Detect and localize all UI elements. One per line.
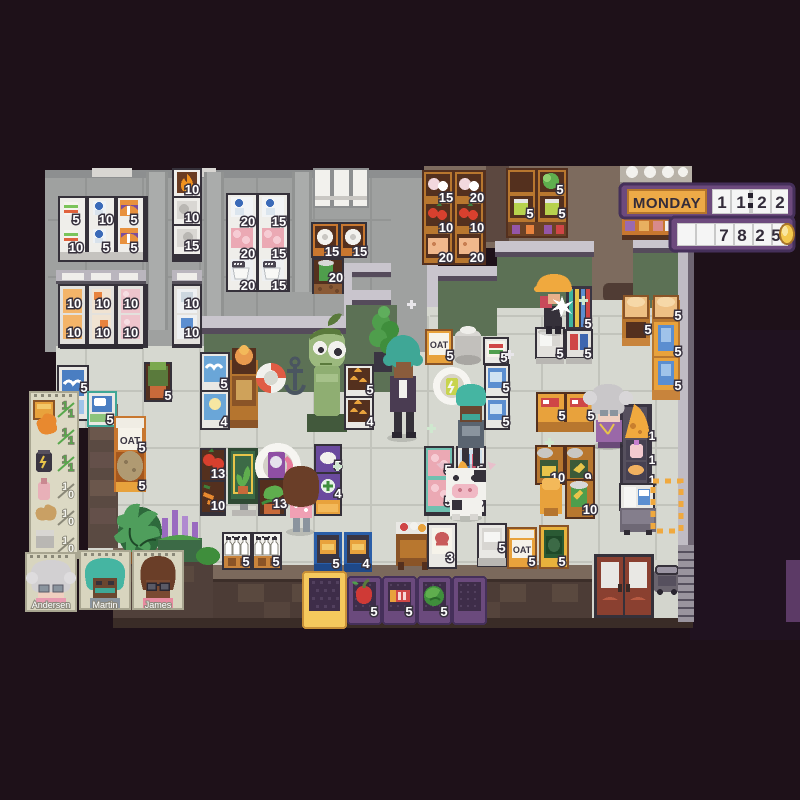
svg-text:13: 13 — [211, 466, 225, 481]
svg-text:20: 20 — [439, 250, 453, 265]
svg-text:15: 15 — [185, 238, 199, 253]
svg-text:5: 5 — [558, 408, 565, 423]
svg-text:1: 1 — [736, 193, 745, 212]
svg-text:20: 20 — [470, 250, 484, 265]
svg-text:James: James — [145, 600, 172, 610]
svg-text:5: 5 — [446, 348, 453, 363]
svg-text:1: 1 — [68, 435, 74, 447]
svg-text:15: 15 — [272, 278, 286, 293]
svg-text:5: 5 — [584, 316, 591, 331]
svg-text:10: 10 — [67, 325, 81, 340]
svg-text:5: 5 — [674, 344, 681, 359]
svg-text:5: 5 — [106, 412, 113, 427]
svg-text:3: 3 — [446, 550, 453, 565]
svg-text:5: 5 — [502, 414, 509, 429]
svg-text:10: 10 — [96, 325, 110, 340]
svg-text:5: 5 — [528, 554, 535, 569]
svg-text:5: 5 — [584, 346, 591, 361]
svg-text:5: 5 — [500, 350, 507, 365]
svg-text:0: 0 — [68, 489, 74, 501]
svg-text:10: 10 — [185, 182, 199, 197]
svg-text:10: 10 — [185, 210, 199, 225]
svg-text:20: 20 — [241, 214, 255, 229]
svg-text:4: 4 — [362, 556, 370, 571]
svg-text:1: 1 — [717, 193, 726, 212]
svg-text:5: 5 — [72, 212, 79, 227]
svg-text:5: 5 — [558, 206, 565, 221]
svg-text:1: 1 — [68, 462, 74, 474]
svg-text:10: 10 — [470, 220, 484, 235]
svg-text:5: 5 — [498, 540, 505, 555]
svg-text:5: 5 — [130, 212, 137, 227]
svg-text:10: 10 — [96, 296, 110, 311]
svg-text:5: 5 — [558, 554, 565, 569]
svg-text:5: 5 — [138, 478, 145, 493]
svg-text:5: 5 — [130, 240, 137, 255]
svg-text:5: 5 — [242, 554, 249, 569]
svg-text:5: 5 — [502, 380, 509, 395]
svg-text:5: 5 — [556, 182, 563, 197]
svg-text:Martin: Martin — [92, 600, 117, 610]
svg-text:20: 20 — [329, 270, 343, 285]
svg-text:0: 0 — [68, 516, 74, 528]
svg-text:5: 5 — [138, 440, 145, 455]
svg-text:5: 5 — [220, 376, 227, 391]
svg-text:2: 2 — [755, 226, 764, 245]
svg-text:10: 10 — [124, 296, 138, 311]
svg-text:15: 15 — [353, 244, 367, 259]
svg-text:1: 1 — [68, 408, 74, 420]
svg-text:5: 5 — [164, 388, 171, 403]
svg-text:4: 4 — [220, 414, 228, 429]
svg-text:8: 8 — [737, 226, 746, 245]
svg-text:5: 5 — [556, 346, 563, 361]
svg-text:5: 5 — [644, 322, 651, 337]
svg-text:20: 20 — [241, 278, 255, 293]
svg-text:MONDAY: MONDAY — [633, 195, 701, 212]
svg-text:10: 10 — [583, 502, 597, 517]
svg-text:2: 2 — [775, 193, 784, 212]
svg-text:5: 5 — [332, 556, 339, 571]
svg-text:20: 20 — [470, 190, 484, 205]
svg-text:5: 5 — [366, 382, 373, 397]
svg-text:10: 10 — [99, 212, 113, 227]
svg-text:10: 10 — [439, 220, 453, 235]
svg-text:4: 4 — [366, 414, 374, 429]
svg-text:10: 10 — [211, 498, 225, 513]
svg-text:OAT: OAT — [120, 436, 140, 447]
svg-text:5: 5 — [102, 240, 109, 255]
svg-text:20: 20 — [241, 246, 255, 261]
svg-text:Andersen: Andersen — [32, 600, 71, 610]
svg-text:5: 5 — [272, 554, 279, 569]
svg-text:5: 5 — [674, 378, 681, 393]
svg-text:10: 10 — [67, 296, 81, 311]
svg-text:5: 5 — [526, 206, 533, 221]
svg-text:2: 2 — [757, 193, 766, 212]
svg-text:5: 5 — [405, 604, 412, 619]
svg-text:5: 5 — [440, 604, 447, 619]
svg-text:15: 15 — [272, 214, 286, 229]
svg-text:15: 15 — [439, 190, 453, 205]
svg-text:15: 15 — [272, 246, 286, 261]
svg-text:10: 10 — [185, 325, 199, 340]
svg-text:5: 5 — [370, 604, 377, 619]
svg-text:1: 1 — [649, 453, 656, 467]
svg-text:10: 10 — [124, 325, 138, 340]
svg-text:5: 5 — [674, 308, 681, 323]
svg-text:1: 1 — [649, 429, 656, 443]
svg-text:10: 10 — [69, 240, 83, 255]
svg-text:4: 4 — [334, 486, 342, 501]
svg-text:10: 10 — [185, 296, 199, 311]
svg-text:15: 15 — [325, 244, 339, 259]
svg-text:5: 5 — [80, 380, 87, 395]
svg-text:7: 7 — [719, 226, 728, 245]
